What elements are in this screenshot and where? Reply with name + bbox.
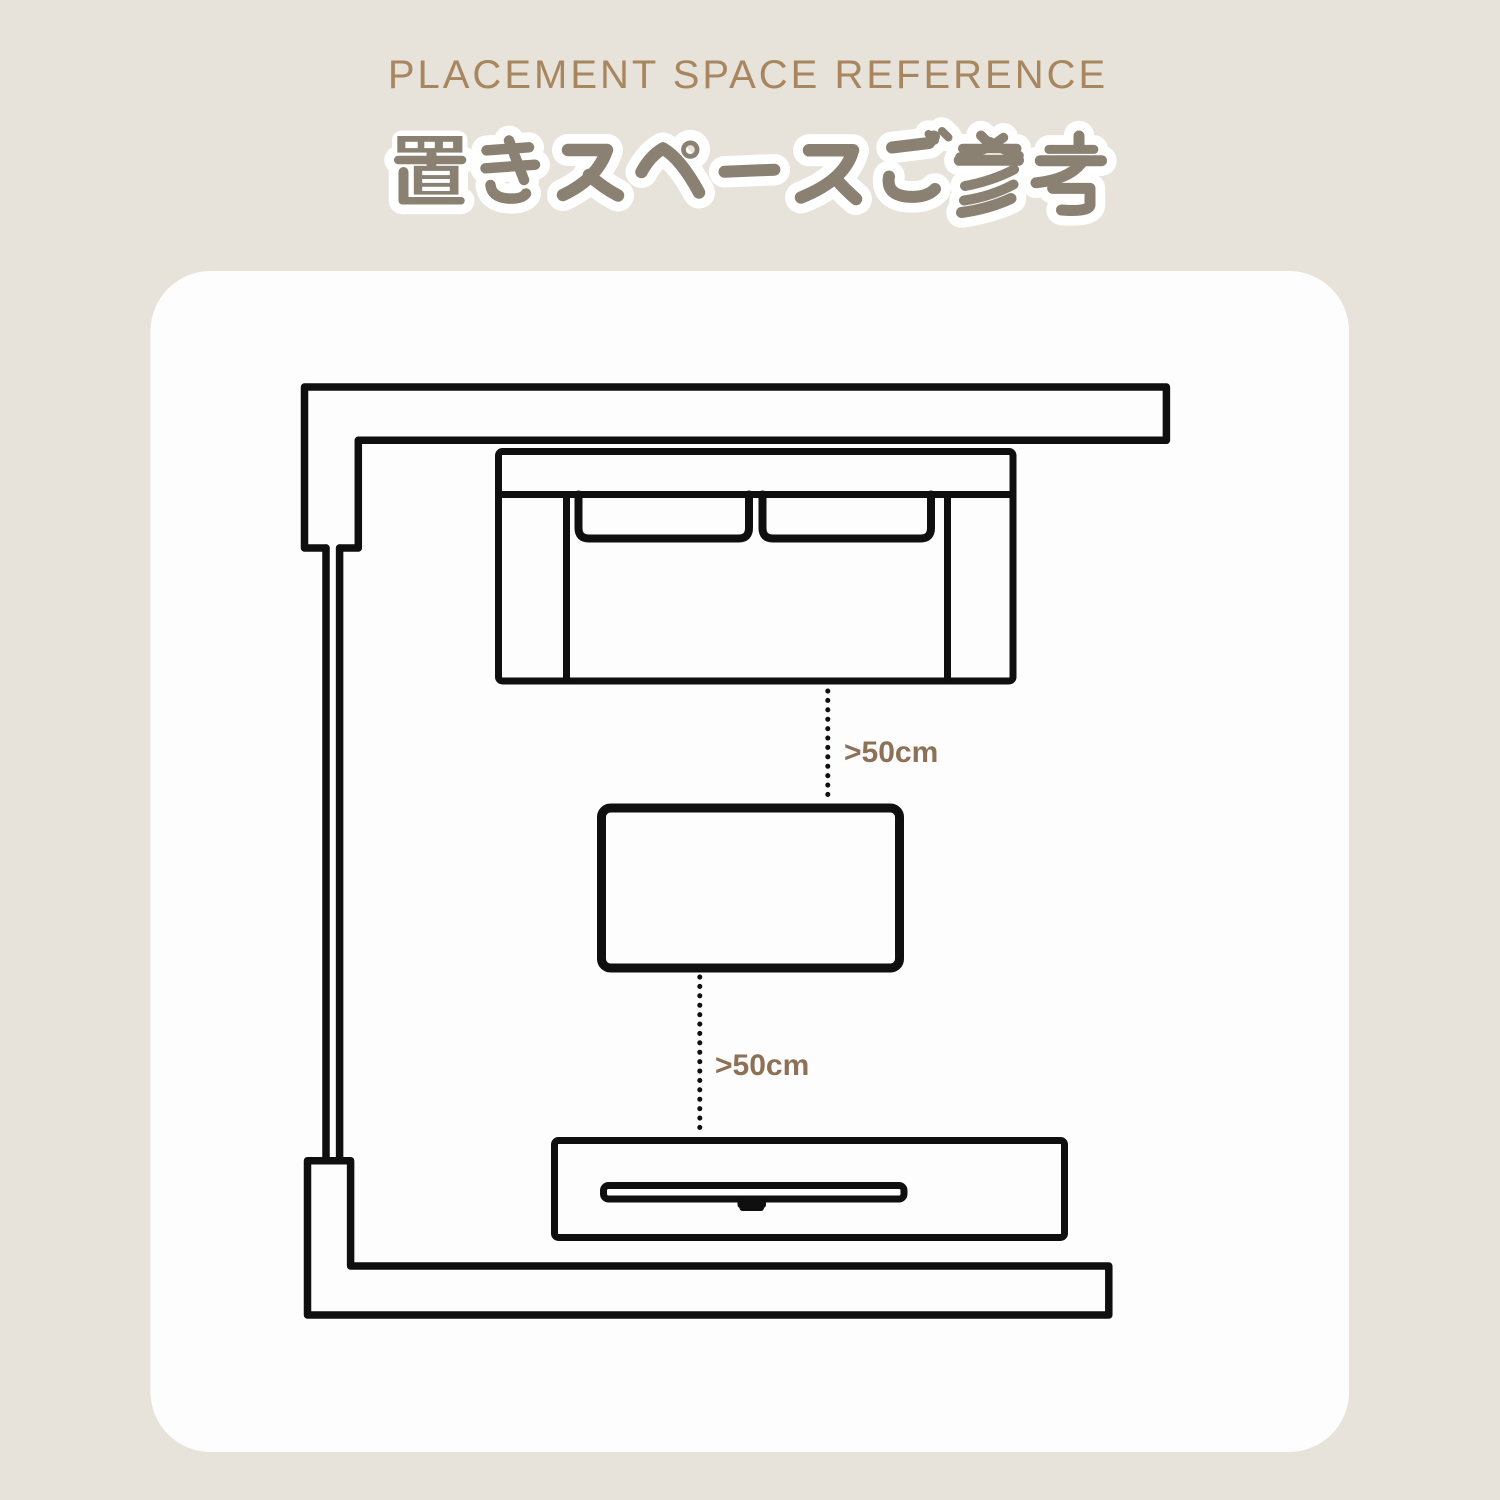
svg-text:>50cm: >50cm bbox=[715, 1049, 809, 1082]
svg-text:>50cm: >50cm bbox=[844, 736, 938, 769]
svg-text:PLACEMENT SPACE REFERENCE: PLACEMENT SPACE REFERENCE bbox=[388, 53, 1108, 97]
